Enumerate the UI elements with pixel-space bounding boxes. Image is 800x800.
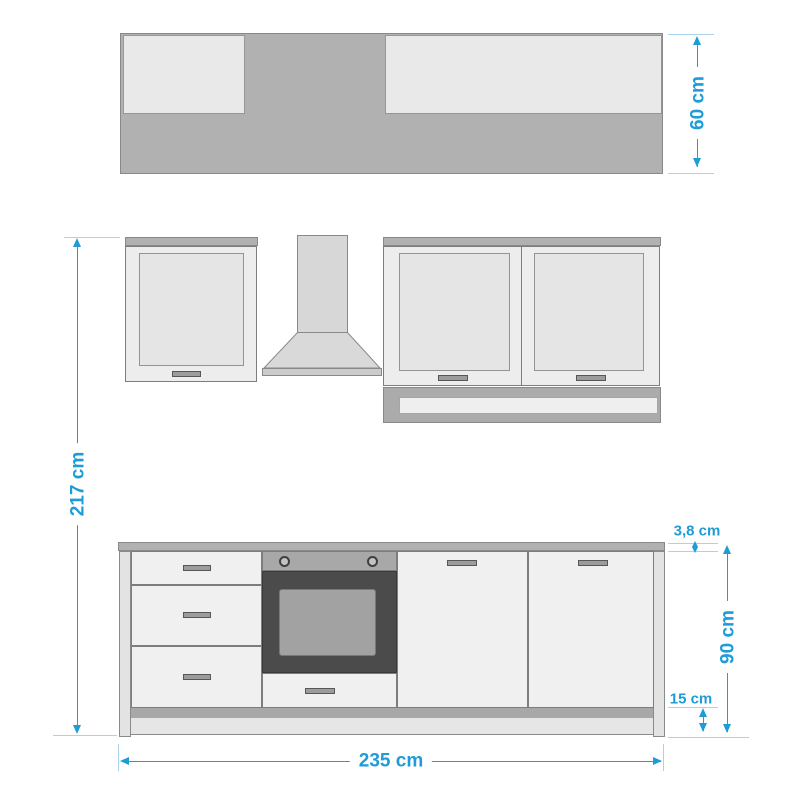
base-height-arrow-up xyxy=(723,545,731,554)
base-door-left xyxy=(397,551,528,708)
depth-extension-top xyxy=(668,34,714,35)
extractor-hood xyxy=(260,233,384,379)
wall-cabinet-right-cornice xyxy=(383,237,661,246)
plinth xyxy=(131,718,653,735)
plinth-height-label: 15 cm xyxy=(670,692,713,707)
base-height-arrow-down xyxy=(723,724,731,733)
height-arrow-up xyxy=(73,238,81,247)
width-dimension-label: 235 cm xyxy=(350,752,432,771)
base-door-right-handle xyxy=(578,560,608,566)
height-dimension-label: 217 cm xyxy=(69,443,88,525)
depth-extension-bottom xyxy=(668,173,714,174)
base-drawer-3-handle xyxy=(183,674,211,680)
wall-cabinet-right-door-panel-left xyxy=(399,253,510,371)
height-extension-bottom xyxy=(53,735,117,736)
hood-canopy xyxy=(264,333,380,369)
wall-cabinet-right-handle-right xyxy=(576,375,606,381)
depth-dimension-label: 60 cm xyxy=(689,67,708,139)
width-arrow-left xyxy=(120,757,129,765)
base-door-left-handle xyxy=(447,560,477,566)
worktop xyxy=(118,542,665,551)
width-extension-left xyxy=(118,744,119,771)
wall-cabinet-left-door-panel xyxy=(139,253,244,366)
hood-base-bar xyxy=(263,369,382,376)
height-arrow-down xyxy=(73,725,81,734)
plinth-shadow xyxy=(131,708,653,718)
wall-cabinet-right-divider xyxy=(521,246,522,386)
plinth-arrow-up xyxy=(699,708,707,717)
plan-worktop-right xyxy=(385,35,662,114)
plan-worktop-left xyxy=(123,35,245,114)
wall-cabinet-left-cornice xyxy=(125,237,258,246)
base-door-right xyxy=(528,551,654,708)
oven-knob-left xyxy=(279,556,290,567)
wall-cabinet-right-door-panel-right xyxy=(534,253,644,371)
kitchen-dimension-diagram: 60 cm 217 cm xyxy=(0,0,800,800)
hood-chimney xyxy=(298,236,348,333)
base-height-dimension-label: 90 cm xyxy=(719,601,738,673)
base-side-panel-right xyxy=(653,551,665,737)
depth-arrow-up xyxy=(693,36,701,45)
wall-shelf-opening xyxy=(399,397,658,414)
wall-cabinet-left-handle xyxy=(172,371,201,377)
plinth-extension-top xyxy=(668,707,718,708)
oven-knob-right xyxy=(367,556,378,567)
depth-arrow-down xyxy=(693,158,701,167)
floor-extension-line xyxy=(668,737,749,738)
worktop-arrow-down xyxy=(692,547,698,553)
plinth-arrow-down xyxy=(699,723,707,732)
width-extension-right xyxy=(663,744,664,771)
oven-lower-drawer-handle xyxy=(305,688,335,694)
base-drawer-2-handle xyxy=(183,612,211,618)
base-side-panel-left xyxy=(119,551,131,737)
oven-window xyxy=(279,589,376,656)
width-arrow-right xyxy=(653,757,662,765)
wall-cabinet-right-handle-left xyxy=(438,375,468,381)
worktop-thickness-label: 3,8 cm xyxy=(674,524,721,539)
base-drawer-1-handle xyxy=(183,565,211,571)
